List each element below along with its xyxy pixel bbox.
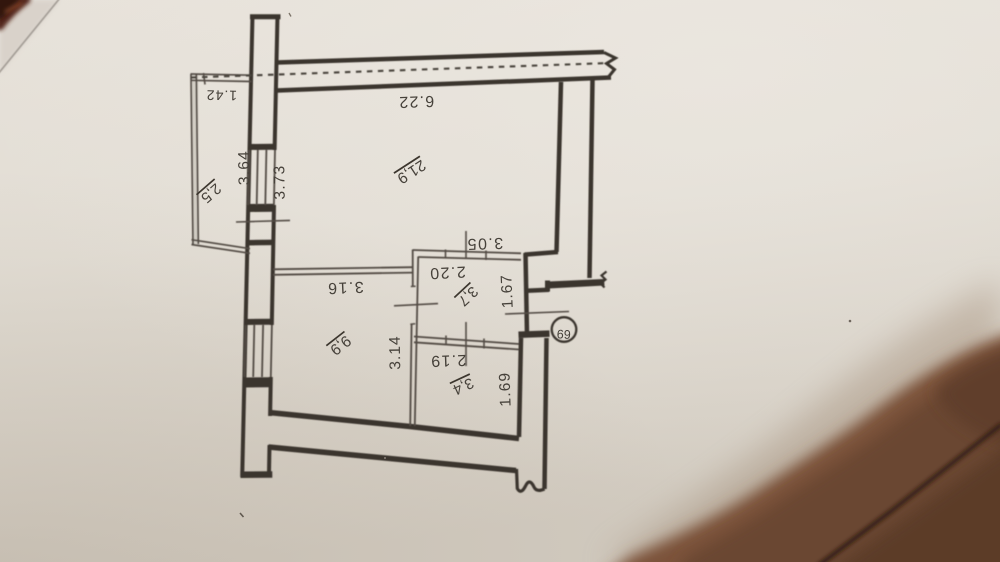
svg-text:2.20: 2.20	[428, 263, 466, 282]
svg-text:6.22: 6.22	[398, 92, 435, 110]
svg-text:1.67: 1.67	[498, 274, 516, 309]
svg-text:1.69: 1.69	[496, 371, 514, 407]
svg-text:3.05: 3.05	[466, 234, 504, 252]
svg-text:3.16: 3.16	[326, 278, 364, 297]
svg-text:3.14: 3.14	[387, 335, 405, 369]
svg-text:1.42: 1.42	[206, 87, 238, 104]
svg-text:2.19: 2.19	[430, 351, 467, 369]
svg-text:3.73: 3.73	[271, 164, 289, 199]
svg-text:69: 69	[556, 327, 571, 342]
svg-text:3.64: 3.64	[236, 150, 254, 185]
